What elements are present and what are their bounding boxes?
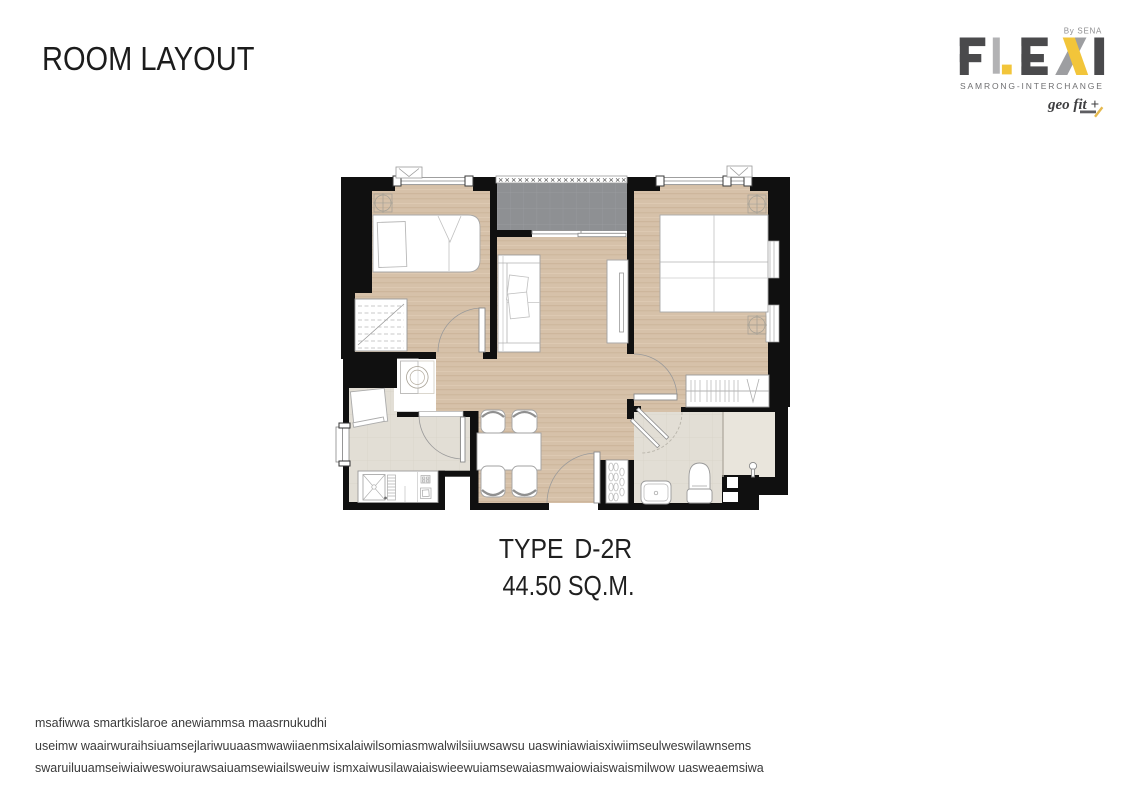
svg-text:By SENA: By SENA — [1064, 27, 1102, 36]
svg-text:SAMRONG-INTERCHANGE: SAMRONG-INTERCHANGE — [960, 81, 1104, 91]
